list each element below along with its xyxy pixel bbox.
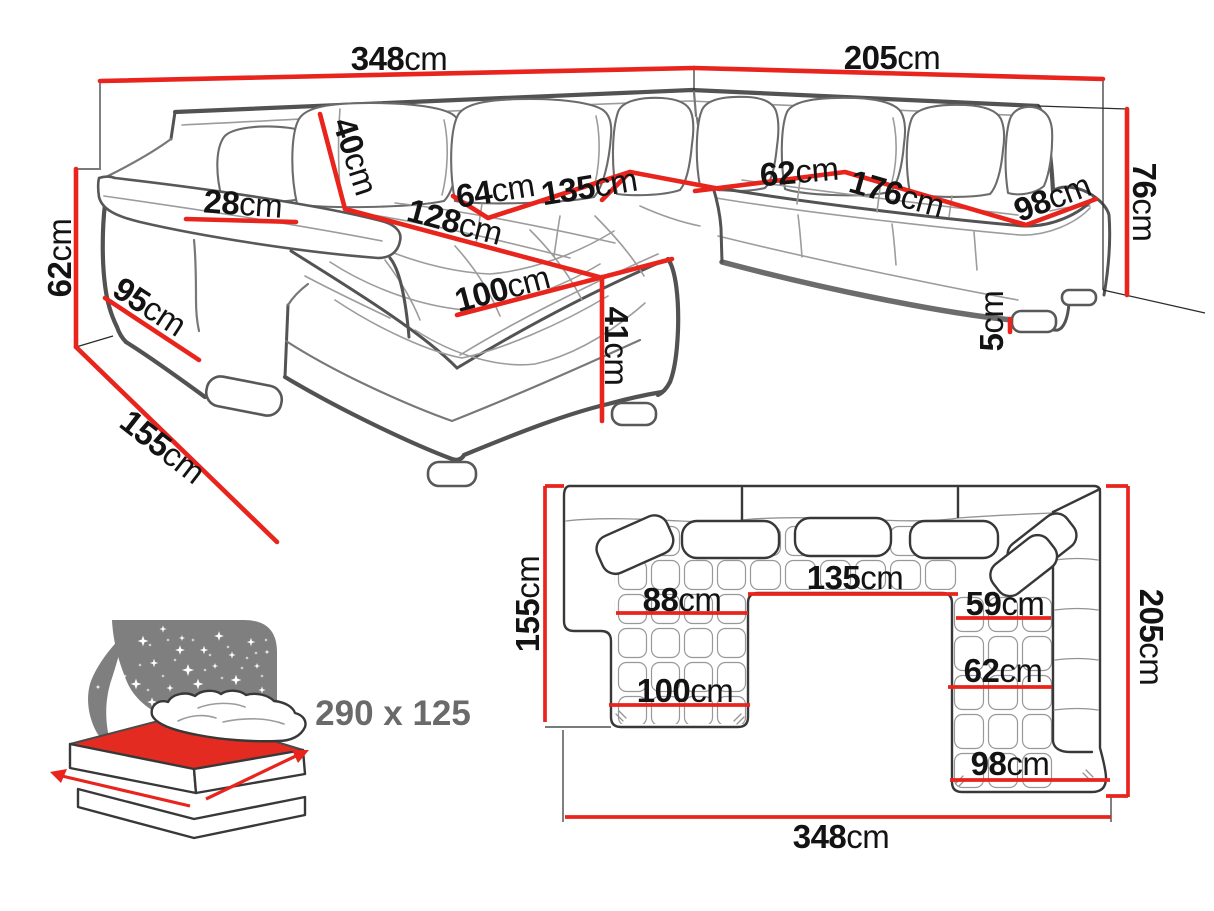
svg-text:88cm: 88cm	[643, 581, 722, 618]
svg-text:100cm: 100cm	[637, 672, 734, 709]
svg-text:62cm: 62cm	[964, 652, 1043, 689]
svg-text:290 x 125: 290 x 125	[315, 694, 471, 733]
svg-text:155cm: 155cm	[509, 556, 546, 653]
svg-text:62cm: 62cm	[758, 150, 840, 194]
svg-text:205cm: 205cm	[1133, 589, 1170, 686]
svg-text:5cm: 5cm	[973, 291, 1010, 352]
svg-text:135cm: 135cm	[807, 559, 904, 596]
svg-text:62cm: 62cm	[41, 219, 78, 298]
svg-text:28cm: 28cm	[202, 182, 283, 224]
svg-text:205cm: 205cm	[844, 39, 941, 76]
svg-text:348cm: 348cm	[793, 818, 890, 855]
svg-text:98cm: 98cm	[971, 745, 1050, 782]
svg-text:59cm: 59cm	[966, 585, 1045, 622]
svg-text:348cm: 348cm	[351, 40, 448, 77]
svg-text:76cm: 76cm	[1126, 163, 1163, 242]
svg-text:41cm: 41cm	[598, 307, 635, 386]
